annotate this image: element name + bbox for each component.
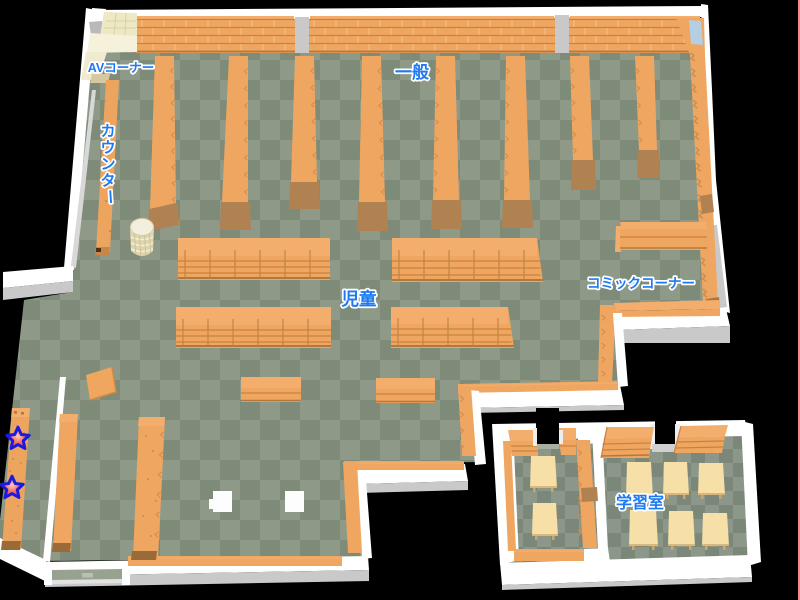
svg-text:タ: タ — [100, 173, 115, 190]
svg-text:コミックコーナー: コミックコーナー — [587, 276, 695, 291]
svg-text:ウ: ウ — [100, 140, 115, 157]
svg-text:学習室: 学習室 — [616, 493, 664, 512]
svg-text:一般: 一般 — [395, 62, 429, 82]
svg-text:ン: ン — [100, 156, 115, 173]
svg-text:カ: カ — [100, 123, 115, 140]
svg-text:児童: 児童 — [341, 289, 377, 309]
svg-text:AVコーナー: AVコーナー — [88, 61, 154, 75]
svg-text:ー: ー — [100, 189, 118, 205]
